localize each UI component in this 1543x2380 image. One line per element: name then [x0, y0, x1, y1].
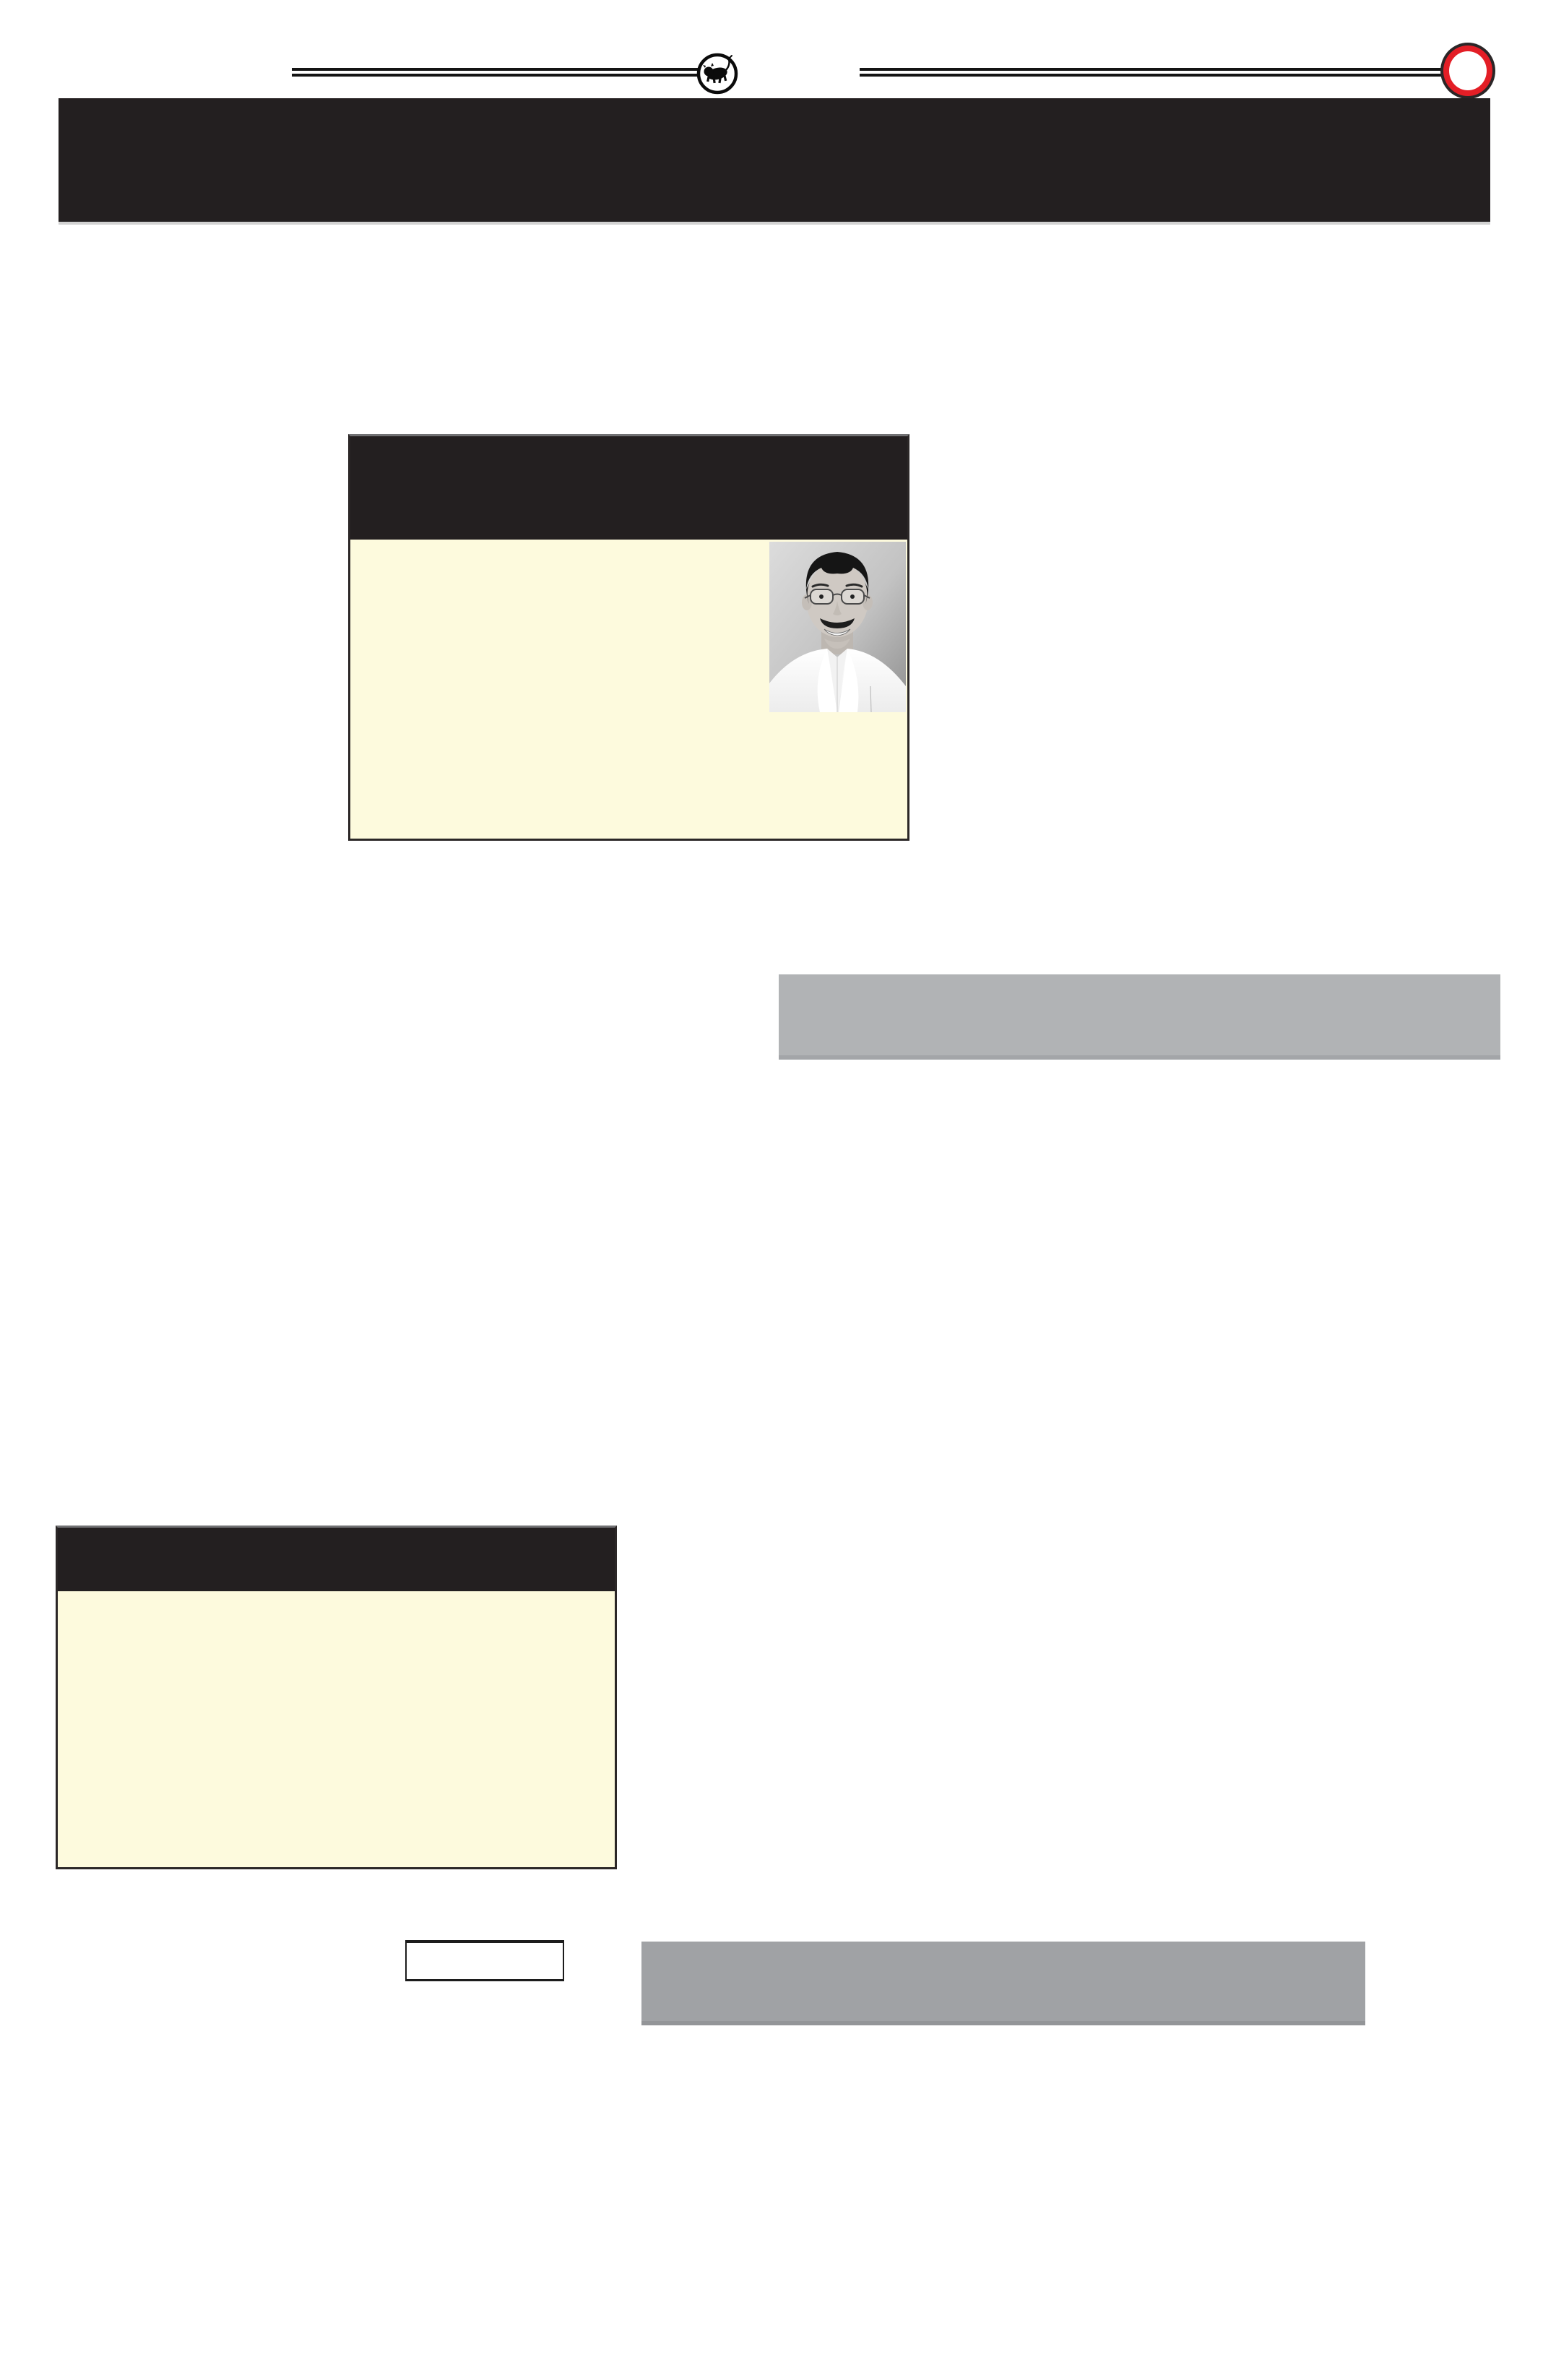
- info-panel-header: [58, 1528, 615, 1591]
- highlight-strip-upper: [779, 974, 1500, 1060]
- small-blank-frame: [405, 1940, 564, 1981]
- feature-panel-header: [350, 436, 907, 540]
- masthead-title-banner: [59, 98, 1490, 222]
- info-panel: [56, 1526, 617, 1869]
- document-page: [0, 0, 1543, 2380]
- red-ring-icon: [1443, 46, 1492, 96]
- bull-emblem-icon: [695, 51, 741, 97]
- bull-emblem-icon-svg: [695, 51, 741, 97]
- feature-panel: [348, 434, 909, 841]
- right-double-rule: [860, 68, 1443, 77]
- highlight-strip-lower: [641, 1942, 1365, 2025]
- portrait-photo: [769, 542, 906, 712]
- left-double-rule: [292, 68, 699, 77]
